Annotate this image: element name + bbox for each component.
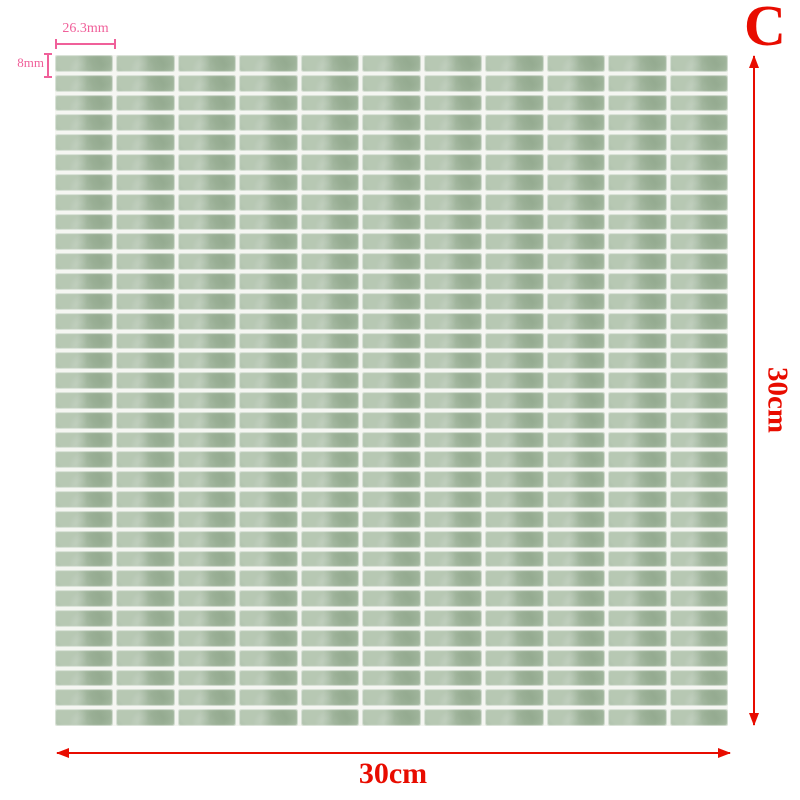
- mosaic-tile: [178, 75, 236, 92]
- mosaic-tile: [301, 333, 359, 350]
- mosaic-tile: [301, 471, 359, 488]
- mosaic-tile: [608, 511, 666, 528]
- mosaic-tile: [239, 551, 297, 568]
- mosaic-tile: [301, 451, 359, 468]
- mosaic-tile: [547, 352, 605, 369]
- mosaic-tile: [547, 273, 605, 290]
- mosaic-tile: [670, 75, 728, 92]
- mosaic-tile: [362, 352, 420, 369]
- mosaic-tile: [547, 650, 605, 667]
- mosaic-tile: [608, 551, 666, 568]
- mosaic-tile: [362, 551, 420, 568]
- mosaic-tile: [670, 570, 728, 587]
- mosaic-tile: [301, 689, 359, 706]
- mosaic-tile: [362, 233, 420, 250]
- mosaic-tile: [178, 313, 236, 330]
- mosaic-tile: [485, 551, 543, 568]
- mosaic-tile: [239, 650, 297, 667]
- mosaic-tile: [55, 650, 113, 667]
- mosaic-tile: [55, 372, 113, 389]
- mosaic-tile: [178, 551, 236, 568]
- mosaic-tile: [239, 511, 297, 528]
- mosaic-tile: [485, 253, 543, 270]
- mosaic-tile: [547, 333, 605, 350]
- mosaic-tile: [178, 412, 236, 429]
- mosaic-tile: [178, 134, 236, 151]
- mosaic-tile: [362, 95, 420, 112]
- mosaic-tile: [670, 214, 728, 231]
- mosaic-tile: [301, 412, 359, 429]
- mosaic-tile: [608, 95, 666, 112]
- mosaic-tile: [608, 531, 666, 548]
- mosaic-tile: [608, 630, 666, 647]
- mosaic-tile: [485, 273, 543, 290]
- mosaic-tile: [116, 95, 174, 112]
- mosaic-tile: [608, 293, 666, 310]
- mosaic-tile: [608, 214, 666, 231]
- mosaic-tile: [608, 491, 666, 508]
- mosaic-tile: [424, 689, 482, 706]
- product-dimension-diagram: 26.3mm 8mm C 30cm 30cm: [0, 0, 800, 800]
- mosaic-tile: [362, 55, 420, 72]
- mosaic-tile: [116, 531, 174, 548]
- mosaic-tile: [116, 134, 174, 151]
- mosaic-tile: [547, 412, 605, 429]
- mosaic-tile: [178, 253, 236, 270]
- mosaic-tile: [239, 174, 297, 191]
- mosaic-tile: [424, 491, 482, 508]
- mosaic-tile: [239, 352, 297, 369]
- mosaic-tile: [424, 531, 482, 548]
- mosaic-tile: [55, 610, 113, 627]
- mosaic-tile: [485, 233, 543, 250]
- mosaic-tile: [55, 471, 113, 488]
- arrowhead-left-icon: [56, 748, 69, 758]
- mosaic-tile: [301, 293, 359, 310]
- mosaic-tile: [485, 412, 543, 429]
- mosaic-tile: [547, 392, 605, 409]
- mosaic-tile: [239, 233, 297, 250]
- mosaic-tile: [301, 531, 359, 548]
- mosaic-tile: [670, 134, 728, 151]
- mosaic-tile: [55, 590, 113, 607]
- mosaic-tile: [239, 590, 297, 607]
- mosaic-tile: [608, 412, 666, 429]
- mosaic-tile: [608, 333, 666, 350]
- mosaic-tile: [55, 134, 113, 151]
- mosaic-tile: [547, 154, 605, 171]
- mosaic-tile: [424, 551, 482, 568]
- mosaic-tile: [485, 333, 543, 350]
- mosaic-tile: [55, 313, 113, 330]
- mosaic-tile: [424, 313, 482, 330]
- mosaic-tile: [608, 313, 666, 330]
- mosaic-tile: [301, 630, 359, 647]
- mosaic-tile: [547, 194, 605, 211]
- mosaic-tile: [485, 689, 543, 706]
- mosaic-tile: [547, 174, 605, 191]
- mosaic-tile: [55, 214, 113, 231]
- mosaic-tile: [670, 95, 728, 112]
- mosaic-tile: [362, 610, 420, 627]
- mosaic-tile: [547, 253, 605, 270]
- mosaic-tile: [55, 432, 113, 449]
- mosaic-tile: [424, 214, 482, 231]
- mosaic-tile: [116, 372, 174, 389]
- mosaic-tile: [424, 412, 482, 429]
- mosaic-tile: [424, 570, 482, 587]
- mosaic-tile: [116, 471, 174, 488]
- mosaic-tile: [116, 174, 174, 191]
- sheet-height-label: 30cm: [761, 367, 794, 433]
- mosaic-tile: [239, 570, 297, 587]
- mosaic-tile: [301, 709, 359, 726]
- mosaic-tile: [178, 55, 236, 72]
- mosaic-tile: [424, 590, 482, 607]
- mosaic-tile: [670, 531, 728, 548]
- mosaic-tile: [608, 55, 666, 72]
- variant-letter: C: [744, 0, 786, 55]
- mosaic-tile: [485, 114, 543, 131]
- mosaic-tile: [670, 333, 728, 350]
- mosaic-tile: [424, 471, 482, 488]
- mosaic-tile: [116, 491, 174, 508]
- mosaic-tile: [485, 650, 543, 667]
- mosaic-tile: [239, 114, 297, 131]
- mosaic-tile: [116, 511, 174, 528]
- tile-width-label: 26.3mm: [55, 21, 116, 37]
- mosaic-tile: [424, 273, 482, 290]
- mosaic-tile: [670, 352, 728, 369]
- mosaic-tile: [608, 253, 666, 270]
- mosaic-tile: [608, 392, 666, 409]
- mosaic-tile: [55, 689, 113, 706]
- mosaic-tile: [116, 114, 174, 131]
- mosaic-tile: [670, 551, 728, 568]
- mosaic-tile: [239, 313, 297, 330]
- mosaic-tile: [485, 432, 543, 449]
- mosaic-tile: [178, 570, 236, 587]
- mosaic-tile: [424, 610, 482, 627]
- mosaic-tile: [670, 293, 728, 310]
- mosaic-tile: [608, 174, 666, 191]
- mosaic-tile: [116, 194, 174, 211]
- mosaic-tile: [608, 471, 666, 488]
- mosaic-tile: [485, 194, 543, 211]
- mosaic-tile: [362, 451, 420, 468]
- mosaic-tile: [239, 194, 297, 211]
- mosaic-tile: [670, 174, 728, 191]
- mosaic-tile: [116, 253, 174, 270]
- mosaic-tile: [362, 432, 420, 449]
- mosaic-tile: [116, 214, 174, 231]
- mosaic-tile: [362, 689, 420, 706]
- mosaic-tile: [670, 412, 728, 429]
- mosaic-tile: [178, 650, 236, 667]
- mosaic-tile: [239, 491, 297, 508]
- mosaic-tile: [116, 590, 174, 607]
- mosaic-tile: [670, 154, 728, 171]
- mosaic-tile: [547, 432, 605, 449]
- mosaic-tile: [362, 630, 420, 647]
- mosaic-tile: [301, 392, 359, 409]
- mosaic-tile: [424, 253, 482, 270]
- mosaic-tile: [301, 233, 359, 250]
- mosaic-tile: [608, 570, 666, 587]
- mosaic-tile: [670, 630, 728, 647]
- mosaic-tile: [485, 511, 543, 528]
- mosaic-tile: [239, 214, 297, 231]
- mosaic-tile: [178, 689, 236, 706]
- mosaic-tile: [424, 650, 482, 667]
- mosaic-tile: [424, 293, 482, 310]
- mosaic-tile: [116, 670, 174, 687]
- mosaic-tile: [485, 313, 543, 330]
- mosaic-tile: [116, 451, 174, 468]
- mosaic-tile: [608, 610, 666, 627]
- mosaic-tile: [55, 273, 113, 290]
- mosaic-tile: [424, 55, 482, 72]
- mosaic-tile: [301, 253, 359, 270]
- mosaic-tile: [485, 75, 543, 92]
- mosaic-tile: [362, 154, 420, 171]
- mosaic-tile: [424, 451, 482, 468]
- tile-height-measure-bracket: [47, 53, 49, 78]
- mosaic-tile: [547, 55, 605, 72]
- mosaic-tile: [55, 412, 113, 429]
- mosaic-tile: [178, 590, 236, 607]
- mosaic-tile: [116, 689, 174, 706]
- mosaic-tile: [547, 451, 605, 468]
- mosaic-tile: [608, 432, 666, 449]
- mosaic-tile: [55, 551, 113, 568]
- mosaic-tile: [239, 95, 297, 112]
- arrowhead-right-icon: [718, 748, 731, 758]
- mosaic-tile: [55, 511, 113, 528]
- mosaic-tile: [55, 531, 113, 548]
- mosaic-tile: [178, 114, 236, 131]
- mosaic-tile: [608, 670, 666, 687]
- mosaic-tile: [485, 154, 543, 171]
- mosaic-tile: [239, 670, 297, 687]
- mosaic-tile: [178, 471, 236, 488]
- mosaic-tile: [547, 75, 605, 92]
- mosaic-tile: [608, 273, 666, 290]
- mosaic-tile: [485, 293, 543, 310]
- mosaic-tile: [239, 689, 297, 706]
- mosaic-tile: [424, 392, 482, 409]
- mosaic-tile: [116, 293, 174, 310]
- mosaic-tile: [178, 372, 236, 389]
- mosaic-tile: [178, 95, 236, 112]
- mosaic-tile: [547, 491, 605, 508]
- mosaic-tile: [547, 570, 605, 587]
- mosaic-tile: [178, 352, 236, 369]
- mosaic-tile: [547, 471, 605, 488]
- mosaic-tile: [362, 75, 420, 92]
- mosaic-tile: [116, 432, 174, 449]
- mosaic-tile: [670, 610, 728, 627]
- mosaic-tile: [485, 670, 543, 687]
- mosaic-tile: [485, 214, 543, 231]
- mosaic-tile: [178, 491, 236, 508]
- mosaic-tile: [55, 154, 113, 171]
- mosaic-tile: [116, 352, 174, 369]
- mosaic-tile: [239, 134, 297, 151]
- mosaic-tile: [362, 471, 420, 488]
- mosaic-tile: [239, 451, 297, 468]
- mosaic-tile: [485, 95, 543, 112]
- mosaic-tile: [670, 55, 728, 72]
- mosaic-tile: [178, 174, 236, 191]
- mosaic-tile: [547, 709, 605, 726]
- mosaic-tile: [670, 233, 728, 250]
- mosaic-tile: [55, 392, 113, 409]
- mosaic-tile: [424, 372, 482, 389]
- mosaic-tile: [178, 670, 236, 687]
- mosaic-tile: [547, 630, 605, 647]
- mosaic-tile: [178, 432, 236, 449]
- mosaic-tile: [424, 511, 482, 528]
- mosaic-tile: [55, 194, 113, 211]
- mosaic-tile: [485, 352, 543, 369]
- mosaic-tile: [670, 709, 728, 726]
- mosaic-tile: [178, 293, 236, 310]
- mosaic-tile: [670, 670, 728, 687]
- mosaic-tile: [608, 352, 666, 369]
- mosaic-tile: [301, 551, 359, 568]
- mosaic-tile: [116, 75, 174, 92]
- mosaic-tile: [547, 95, 605, 112]
- mosaic-tile: [608, 372, 666, 389]
- mosaic-tile: [362, 253, 420, 270]
- mosaic-tile: [55, 293, 113, 310]
- mosaic-tile: [362, 194, 420, 211]
- mosaic-tile: [239, 154, 297, 171]
- mosaic-tile: [670, 114, 728, 131]
- vertical-dimension-arrow: [753, 56, 755, 725]
- mosaic-tile: [362, 570, 420, 587]
- mosaic-tile: [301, 590, 359, 607]
- mosaic-tile: [239, 75, 297, 92]
- mosaic-tile: [424, 95, 482, 112]
- mosaic-tile: [239, 432, 297, 449]
- mosaic-tile: [362, 333, 420, 350]
- mosaic-tile: [424, 174, 482, 191]
- mosaic-tile: [547, 293, 605, 310]
- mosaic-tile: [485, 174, 543, 191]
- mosaic-tile: [362, 531, 420, 548]
- mosaic-tile: [362, 670, 420, 687]
- mosaic-tile: [670, 253, 728, 270]
- mosaic-tile: [362, 372, 420, 389]
- mosaic-tile: [547, 114, 605, 131]
- mosaic-tile: [116, 610, 174, 627]
- mosaic-tile: [424, 75, 482, 92]
- mosaic-tile: [301, 670, 359, 687]
- mosaic-tile: [670, 432, 728, 449]
- mosaic-tile: [547, 670, 605, 687]
- mosaic-tile: [670, 491, 728, 508]
- mosaic-tile: [239, 531, 297, 548]
- mosaic-tile: [301, 491, 359, 508]
- mosaic-tile: [301, 570, 359, 587]
- tile-width-measure-bracket: [55, 43, 116, 45]
- mosaic-tile: [239, 392, 297, 409]
- mosaic-tile: [362, 114, 420, 131]
- mosaic-tile: [178, 154, 236, 171]
- mosaic-tile: [301, 313, 359, 330]
- mosaic-tile: [116, 392, 174, 409]
- mosaic-tile: [670, 650, 728, 667]
- mosaic-tile: [301, 432, 359, 449]
- mosaic-tile: [55, 491, 113, 508]
- mosaic-tile: [239, 293, 297, 310]
- mosaic-tile: [608, 451, 666, 468]
- mosaic-tile: [485, 709, 543, 726]
- mosaic-tile: [301, 372, 359, 389]
- mosaic-tile: [547, 531, 605, 548]
- mosaic-tile: [670, 194, 728, 211]
- mosaic-tile: [301, 352, 359, 369]
- arrowhead-up-icon: [749, 55, 759, 68]
- mosaic-tile: [670, 689, 728, 706]
- mosaic-tile: [301, 511, 359, 528]
- mosaic-tile: [608, 650, 666, 667]
- mosaic-tile: [55, 451, 113, 468]
- mosaic-tile: [362, 650, 420, 667]
- mosaic-tile: [239, 253, 297, 270]
- mosaic-tile: [301, 75, 359, 92]
- mosaic-tile: [55, 55, 113, 72]
- mosaic-tile: [547, 610, 605, 627]
- mosaic-tile: [670, 451, 728, 468]
- mosaic-tile: [670, 471, 728, 488]
- mosaic-tile: [55, 75, 113, 92]
- mosaic-tile: [301, 610, 359, 627]
- mosaic-tile: [55, 333, 113, 350]
- mosaic-tile: [239, 372, 297, 389]
- mosaic-tile: [424, 194, 482, 211]
- mosaic-tile: [116, 570, 174, 587]
- mosaic-tile: [424, 134, 482, 151]
- mosaic-tile: [485, 372, 543, 389]
- mosaic-tile: [362, 511, 420, 528]
- mosaic-tile: [362, 293, 420, 310]
- mosaic-tile: [485, 610, 543, 627]
- mosaic-tile: [301, 114, 359, 131]
- mosaic-tile: [301, 174, 359, 191]
- mosaic-tile: [547, 214, 605, 231]
- mosaic-tile: [547, 372, 605, 389]
- mosaic-tile: [301, 650, 359, 667]
- mosaic-tile: [178, 392, 236, 409]
- mosaic-tile: [55, 95, 113, 112]
- mosaic-tile: [608, 194, 666, 211]
- mosaic-tile: [301, 154, 359, 171]
- mosaic-tile: [362, 590, 420, 607]
- mosaic-tile: [116, 630, 174, 647]
- mosaic-tile: [55, 709, 113, 726]
- mosaic-tile: [608, 154, 666, 171]
- mosaic-tile: [608, 689, 666, 706]
- mosaic-tile: [239, 273, 297, 290]
- mosaic-tile: [178, 610, 236, 627]
- mosaic-tile: [178, 630, 236, 647]
- mosaic-tile: [547, 590, 605, 607]
- mosaic-tile-grid: [55, 55, 728, 726]
- mosaic-tile: [301, 95, 359, 112]
